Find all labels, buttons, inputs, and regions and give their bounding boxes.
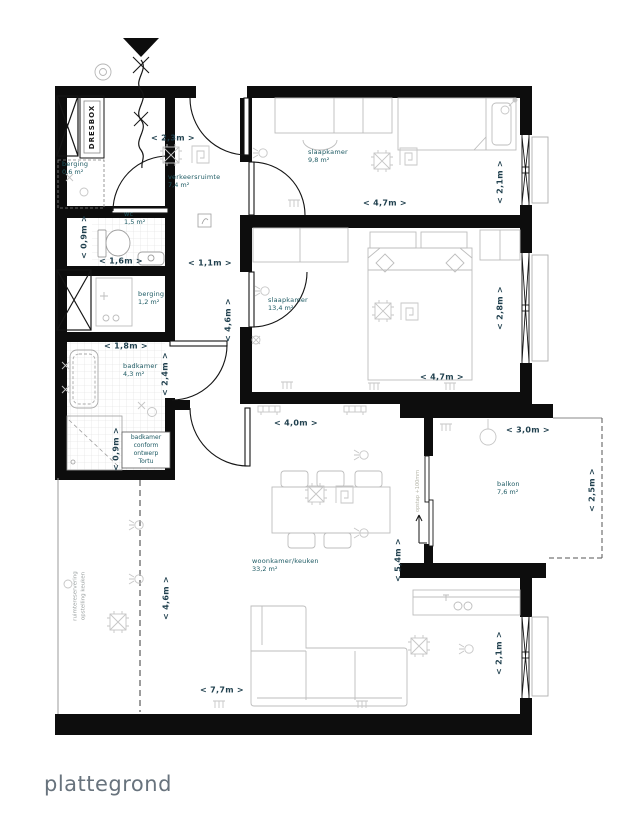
- room-label-balcony: balkon 7,6 m²: [497, 480, 520, 497]
- room-area: 4,3 m²: [123, 370, 157, 378]
- wardrobe-bedroom1: [275, 98, 392, 133]
- wall-light-icon: [129, 520, 143, 530]
- room-label-bedroom2: slaapkamer 13,4 m²: [268, 296, 308, 313]
- room-name: berging: [138, 290, 164, 298]
- dim-hall-width: < 1,1m >: [188, 259, 232, 268]
- floor-heating-icon: [401, 303, 418, 320]
- bed-single: [398, 98, 516, 150]
- floor-heating-icon: [336, 486, 353, 503]
- wall-lamp-icon: [501, 98, 517, 114]
- ventilation-icon: [371, 150, 393, 172]
- room-area: 33,2 m²: [252, 565, 319, 573]
- floor-plan-page: DRESBOX berging 0,6 m² verkeersruimte 7,…: [0, 0, 642, 828]
- ventilation-icon: [160, 144, 182, 166]
- ventilation-icon: [372, 300, 394, 322]
- room-name: slaapkamer: [268, 296, 308, 304]
- kitchen-reservation-note: ruimtereservering opstelling keuken: [72, 571, 87, 621]
- room-name: badkamer: [123, 362, 157, 370]
- dim-balcony-depth: < 2,5m >: [588, 468, 597, 512]
- radiator-icon: [344, 406, 366, 415]
- closet-door: [112, 156, 168, 213]
- room-name: verkeersruimte: [168, 173, 220, 181]
- room-area: 7,6 m²: [497, 488, 520, 496]
- bathroom-note: badkamer conform ontwerp Tortu: [123, 434, 169, 466]
- socket-icon: [281, 382, 293, 389]
- room-name: wc: [124, 210, 145, 218]
- room-label-storage-small: berging 0,6 m²: [62, 160, 88, 177]
- floor-heating-icon: [400, 148, 417, 165]
- entrance-marker: [95, 38, 159, 168]
- wall-light-icon: [255, 286, 269, 296]
- dim-bathroom-depth: < 2,4m >: [161, 352, 170, 396]
- window-bedroom1: [522, 135, 548, 205]
- dim-entry-width: < 2,3m >: [151, 134, 195, 143]
- dim-bedroom1-depth: < 2,1m >: [496, 160, 505, 204]
- dining-table: [272, 471, 390, 548]
- page-title: plattegrond: [44, 772, 172, 796]
- socket-icon: [368, 383, 380, 390]
- room-label-hall: verkeersruimte 7,4 m²: [168, 173, 220, 190]
- dim-living-window-depth: < 2,1m >: [495, 631, 504, 675]
- dim-bedroom1-width: < 4,7m >: [363, 199, 407, 208]
- dim-living-depth: < 5,4m >: [394, 538, 403, 582]
- toilet: [98, 230, 130, 257]
- room-name: berging: [62, 160, 88, 168]
- dim-shower-width: < 0,9m >: [112, 427, 121, 471]
- room-name: slaapkamer: [308, 148, 348, 156]
- socket-icon: [440, 424, 452, 431]
- closet-label: DRESBOX: [88, 105, 96, 149]
- room-area: 13,4 m²: [268, 304, 308, 312]
- dim-bedroom2-width: < 4,7m >: [420, 373, 464, 382]
- floor-plan-drawing: [0, 0, 642, 828]
- window-bedroom2: [522, 253, 548, 363]
- wall-light-icon: [459, 644, 473, 654]
- room-area: 0,6 m²: [62, 168, 88, 176]
- kitchen-reservation-zone: [58, 478, 140, 714]
- dim-wc-width: < 1,6m >: [99, 257, 143, 266]
- ventilation-icon: [107, 611, 129, 633]
- room-label-living: woonkamer/keuken 33,2 m²: [252, 557, 319, 574]
- dim-living-width: < 7,7m >: [200, 686, 244, 695]
- room-area: 7,4 m²: [168, 181, 220, 189]
- room-area: 1,5 m²: [124, 218, 145, 226]
- dim-bathroom-width: < 1,8m >: [104, 342, 148, 351]
- sofa: [251, 606, 407, 706]
- wall-light-icon: [129, 574, 143, 584]
- room-name: woonkamer/keuken: [252, 557, 319, 565]
- ventilation-icon: [305, 483, 327, 505]
- living-room-door: [190, 408, 250, 466]
- balcony-ceiling-light-icon: [480, 419, 496, 445]
- room-label-bathroom: badkamer 4,3 m²: [123, 362, 157, 379]
- thermostat-icon: [252, 336, 260, 344]
- room-label-storage: berging 1,2 m²: [138, 290, 164, 307]
- dim-living-top-width: < 4,0m >: [274, 419, 318, 428]
- balcony-step-note: opstap +100mm: [415, 470, 421, 512]
- room-label-wc: wc 1,5 m²: [124, 210, 145, 227]
- radiator-icon: [258, 406, 280, 415]
- bedroom1-door: [249, 162, 305, 215]
- floor-heating-icon: [192, 146, 209, 163]
- dim-balcony-width: < 3,0m >: [506, 426, 550, 435]
- bathroom-door: [170, 341, 227, 400]
- meter-box-icon: [198, 214, 211, 227]
- room-label-bedroom1: slaapkamer 9,8 m²: [308, 148, 348, 165]
- dim-bedroom2-depth: < 2,8m >: [496, 286, 505, 330]
- wardrobe-bedroom2: [253, 228, 348, 262]
- wall-light-icon: [253, 148, 267, 158]
- socket-icon: [356, 701, 368, 708]
- socket-icon: [213, 701, 225, 708]
- socket-icon: [288, 200, 300, 207]
- washing-machine: [96, 278, 132, 326]
- dim-wc-depth: < 0,9m >: [80, 215, 89, 259]
- dim-kitchen-zone-depth: < 4,6m >: [162, 576, 171, 620]
- ventilation-icon: [408, 635, 430, 657]
- room-area: 1,2 m²: [138, 298, 164, 306]
- headboard-shelves: [370, 230, 520, 260]
- wall-light-icon: [354, 450, 368, 460]
- bed-double: [368, 248, 472, 380]
- point-icon: [64, 580, 72, 588]
- socket-icon: [444, 383, 456, 390]
- room-area: 9,8 m²: [308, 156, 348, 164]
- dim-hall-length: < 4,6m >: [224, 298, 233, 342]
- kitchen-counter: [413, 590, 520, 615]
- window-living: [522, 615, 548, 698]
- room-name: balkon: [497, 480, 520, 488]
